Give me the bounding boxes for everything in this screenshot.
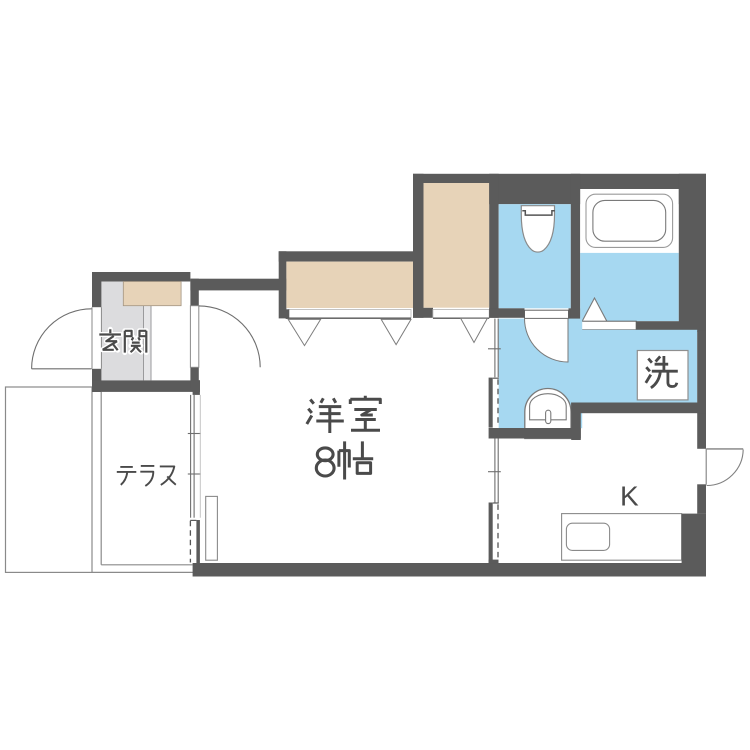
svg-text:K: K <box>620 481 639 512</box>
